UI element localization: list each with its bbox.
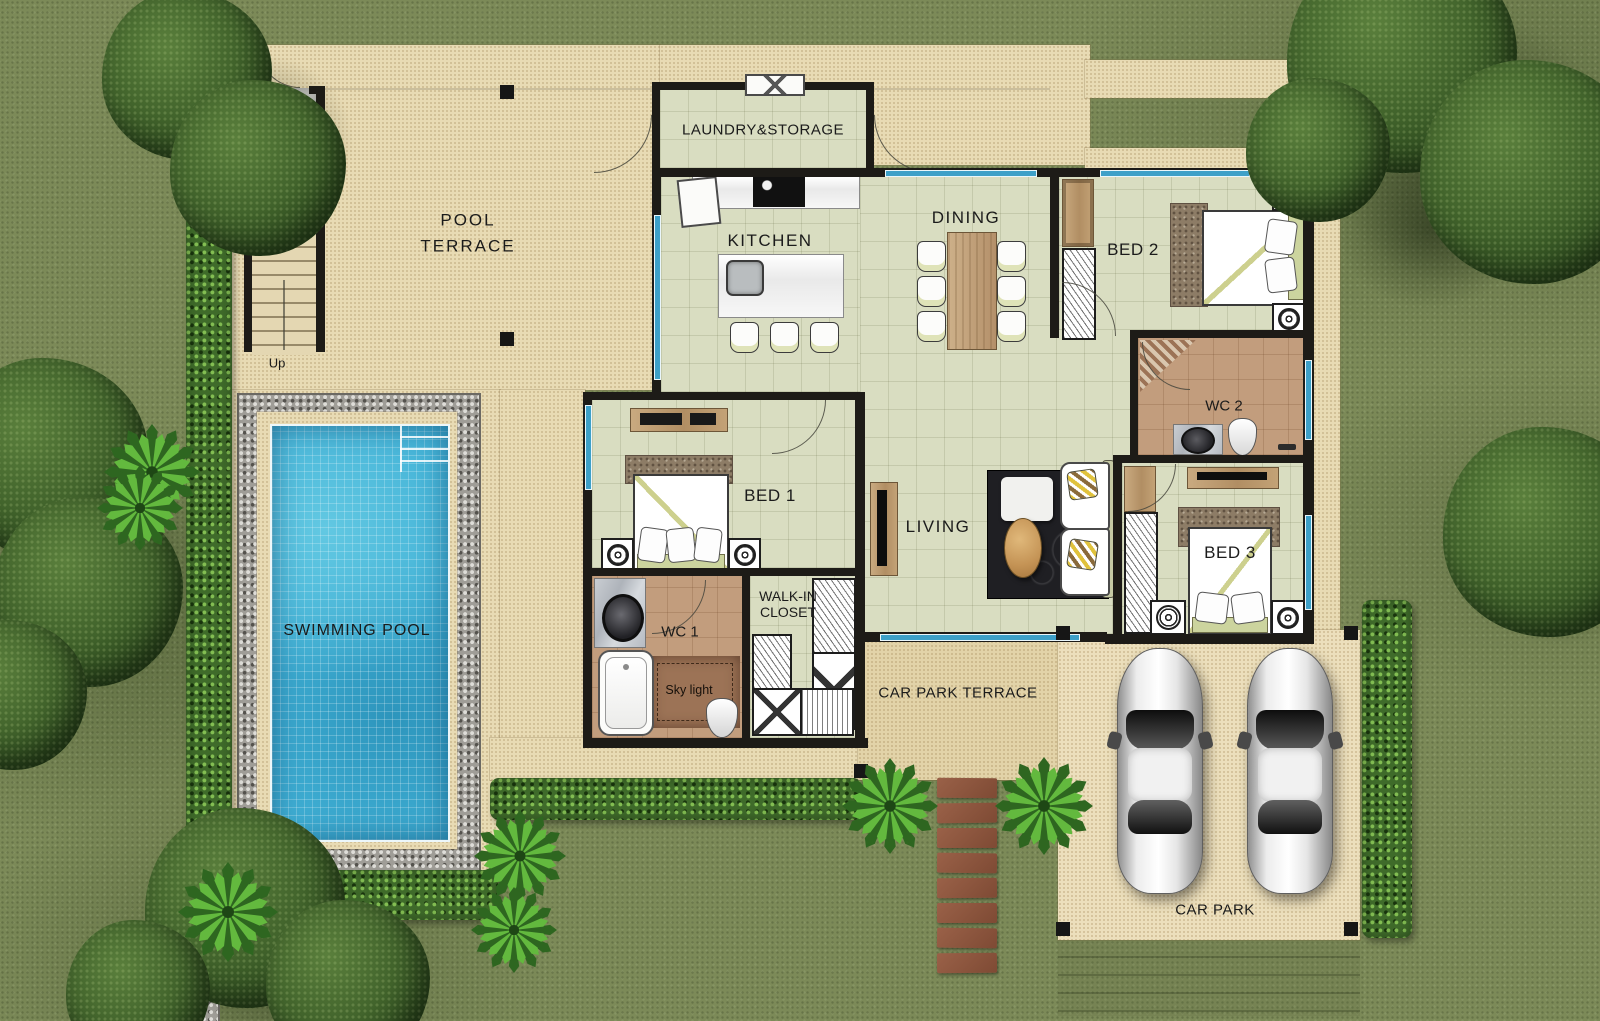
dining-chair [997, 241, 1026, 272]
label-laundry-storage: LAUNDRY&STORAGE [682, 122, 844, 139]
car-roof [1128, 748, 1192, 802]
dining-chair [997, 311, 1026, 342]
dining-chair [917, 276, 946, 307]
car-rear-window [1258, 800, 1322, 834]
bathtub-drain [623, 664, 629, 670]
label-sky-light: Sky light [665, 683, 712, 697]
wc2-sink [1181, 427, 1215, 454]
car-windshield [1256, 710, 1324, 750]
palm-plant [178, 862, 278, 962]
bed1-pillow [693, 527, 723, 564]
tree [170, 80, 346, 256]
label-car-park: CAR PARK [1175, 902, 1255, 919]
dining-table [947, 232, 997, 350]
dining-chair [997, 276, 1026, 307]
palm-plant [97, 465, 183, 551]
bed1-dresser-detail [690, 413, 716, 425]
bed3-pillow [1194, 591, 1229, 625]
bed3-window-east [1305, 515, 1312, 610]
car-rear-window [1128, 800, 1192, 834]
label-living: LIVING [906, 517, 971, 537]
stepping-stone [937, 903, 997, 923]
column [1344, 922, 1358, 936]
stepping-stone [937, 878, 997, 899]
kitchen-stool [810, 322, 839, 353]
house-wall-south-west [583, 738, 868, 748]
bed1-wall-south [583, 568, 864, 576]
laundry-vent [745, 74, 805, 96]
bed1-wall-north [583, 392, 864, 400]
wc1-bathtub [598, 650, 654, 736]
wc1-closet-divider [742, 576, 750, 738]
column [500, 85, 514, 99]
lamp-icon [607, 544, 629, 566]
dining-window-north [885, 170, 1037, 177]
stepping-stone [937, 853, 997, 874]
palm-plant [995, 757, 1093, 855]
bed3-nightstand [1150, 600, 1186, 635]
bed1-nightstand [601, 538, 634, 572]
living-tv [877, 490, 887, 566]
stepping-stone [937, 828, 997, 848]
stepping-stone [937, 953, 997, 974]
stove-cooktop [753, 176, 805, 207]
lamp-icon [1278, 308, 1300, 330]
kitchen-window-west [654, 215, 661, 380]
coffee-table [1004, 518, 1042, 578]
wc2-window-east [1305, 360, 1312, 440]
bed1-nightstand [728, 538, 761, 572]
pool-steps [400, 426, 448, 472]
bed1-bed [633, 474, 729, 572]
label-swimming-pool: SWIMMING POOL [283, 622, 430, 640]
lamp-icon [1156, 605, 1181, 630]
car-windshield [1126, 710, 1194, 750]
living-throw [1001, 477, 1053, 521]
stepping-stone [937, 928, 997, 949]
living-window-south [880, 634, 1080, 641]
label-car-park-terrace: CAR PARK TERRACE [878, 685, 1037, 702]
kitchen-stool [770, 322, 799, 353]
island-sink [726, 260, 764, 296]
label-wc1: WC 1 [661, 624, 699, 641]
bed3-tv [1197, 472, 1267, 480]
closet-unit [812, 578, 856, 654]
label-pool-terrace: POOL TERRACE [420, 208, 515, 259]
sofa-pillow-striped [1066, 538, 1099, 571]
tree [1246, 78, 1390, 222]
dining-chair [917, 241, 946, 272]
stair-guide-line [283, 280, 285, 350]
car-roof [1258, 748, 1322, 802]
column [1344, 626, 1358, 640]
hedge-carpark-east [1362, 600, 1412, 938]
label-up: Up [269, 356, 286, 371]
bed1-pillow [665, 527, 696, 564]
floor-plan-canvas: POOL TERRACE PUMP Up SWIMMING POOL LAUND… [0, 0, 1600, 1021]
stepping-stone [937, 778, 997, 799]
column [1056, 922, 1070, 936]
laundry-wall-east [866, 82, 874, 176]
label-bed2: BED 2 [1107, 240, 1159, 260]
bed2-window-north [1100, 170, 1250, 177]
bed1-pillow [637, 526, 669, 564]
bed2-wall-west [1050, 168, 1059, 338]
column [500, 332, 514, 346]
label-wc2: WC 2 [1205, 398, 1243, 415]
bed2-pillow [1264, 256, 1298, 293]
bed1-window-west [585, 405, 592, 490]
wc2-faucet [1278, 444, 1296, 450]
closet-unit [752, 634, 792, 690]
stepping-stone [937, 803, 997, 824]
bed2-cabinet [1062, 179, 1094, 247]
bed3-nightstand [1271, 600, 1305, 635]
kitchen-stool [730, 322, 759, 353]
laundry-wall-west [652, 82, 660, 176]
car-2 [1247, 648, 1333, 894]
wc2-wall-west [1130, 330, 1138, 463]
label-bed1: BED 1 [744, 486, 796, 506]
label-kitchen: KITCHEN [727, 231, 812, 251]
dining-chair [917, 311, 946, 342]
label-walk-in-closet: WALK-IN CLOSET [759, 588, 817, 620]
wc2-wall-south [1113, 455, 1312, 463]
column [1056, 626, 1070, 640]
bed2-wall-south [1130, 330, 1312, 338]
wc1-sink [602, 594, 644, 642]
closet-unit [800, 688, 854, 736]
palm-plant [471, 887, 557, 973]
bed3-wall-south [1105, 634, 1314, 644]
palm-plant [842, 758, 938, 854]
bed3-wall-west [1113, 455, 1122, 644]
car-1 [1117, 648, 1203, 894]
lamp-icon [1277, 607, 1299, 629]
bed3-pillow [1230, 591, 1266, 625]
side-path-west [500, 390, 585, 780]
driveway-apron [1058, 940, 1360, 1016]
label-bed3: BED 3 [1204, 543, 1256, 563]
label-dining: DINING [932, 208, 1001, 228]
fridge [677, 176, 722, 228]
sofa-pillow-striped [1066, 468, 1099, 501]
lamp-icon [734, 544, 756, 566]
bed1-dresser-detail [640, 413, 682, 425]
closet-unit [752, 688, 802, 736]
